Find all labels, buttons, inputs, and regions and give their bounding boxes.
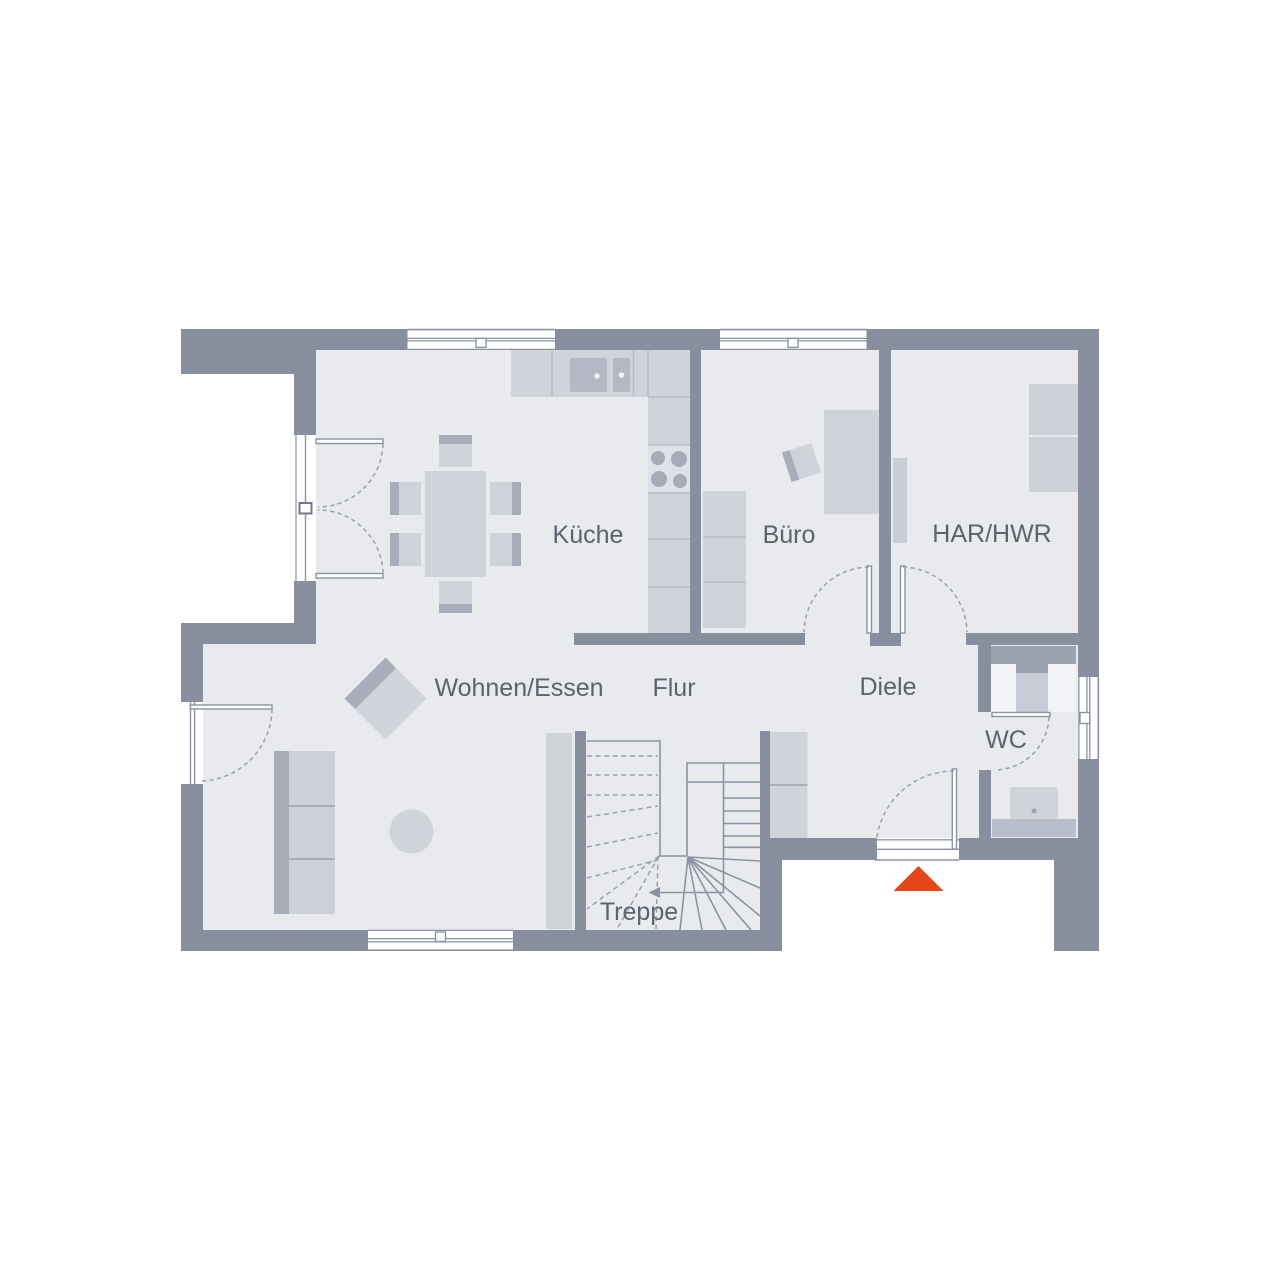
svg-text:Küche: Küche (553, 521, 624, 549)
svg-text:Büro: Büro (763, 521, 816, 549)
svg-text:Flur: Flur (652, 674, 695, 702)
svg-text:WC: WC (985, 726, 1027, 754)
svg-text:HAR/HWR: HAR/HWR (932, 520, 1051, 548)
svg-text:Treppe: Treppe (600, 898, 678, 926)
svg-text:Wohnen/Essen: Wohnen/Essen (434, 674, 603, 702)
svg-text:Diele: Diele (860, 673, 917, 701)
